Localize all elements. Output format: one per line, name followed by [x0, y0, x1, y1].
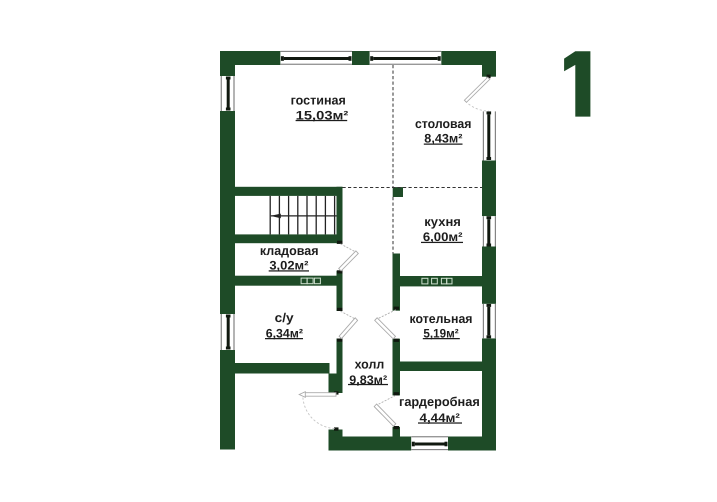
svg-text:гардеробная: гардеробная	[399, 394, 480, 409]
svg-text:холл: холл	[355, 356, 385, 371]
svg-text:гостиная: гостиная	[291, 92, 346, 107]
svg-text:8,43м²: 8,43м²	[424, 131, 462, 145]
svg-text:кладовая: кладовая	[260, 243, 319, 258]
svg-text:столовая: столовая	[415, 116, 472, 131]
svg-text:с/у: с/у	[275, 310, 295, 325]
svg-text:котельная: котельная	[410, 311, 473, 326]
svg-text:кухня: кухня	[424, 214, 461, 229]
